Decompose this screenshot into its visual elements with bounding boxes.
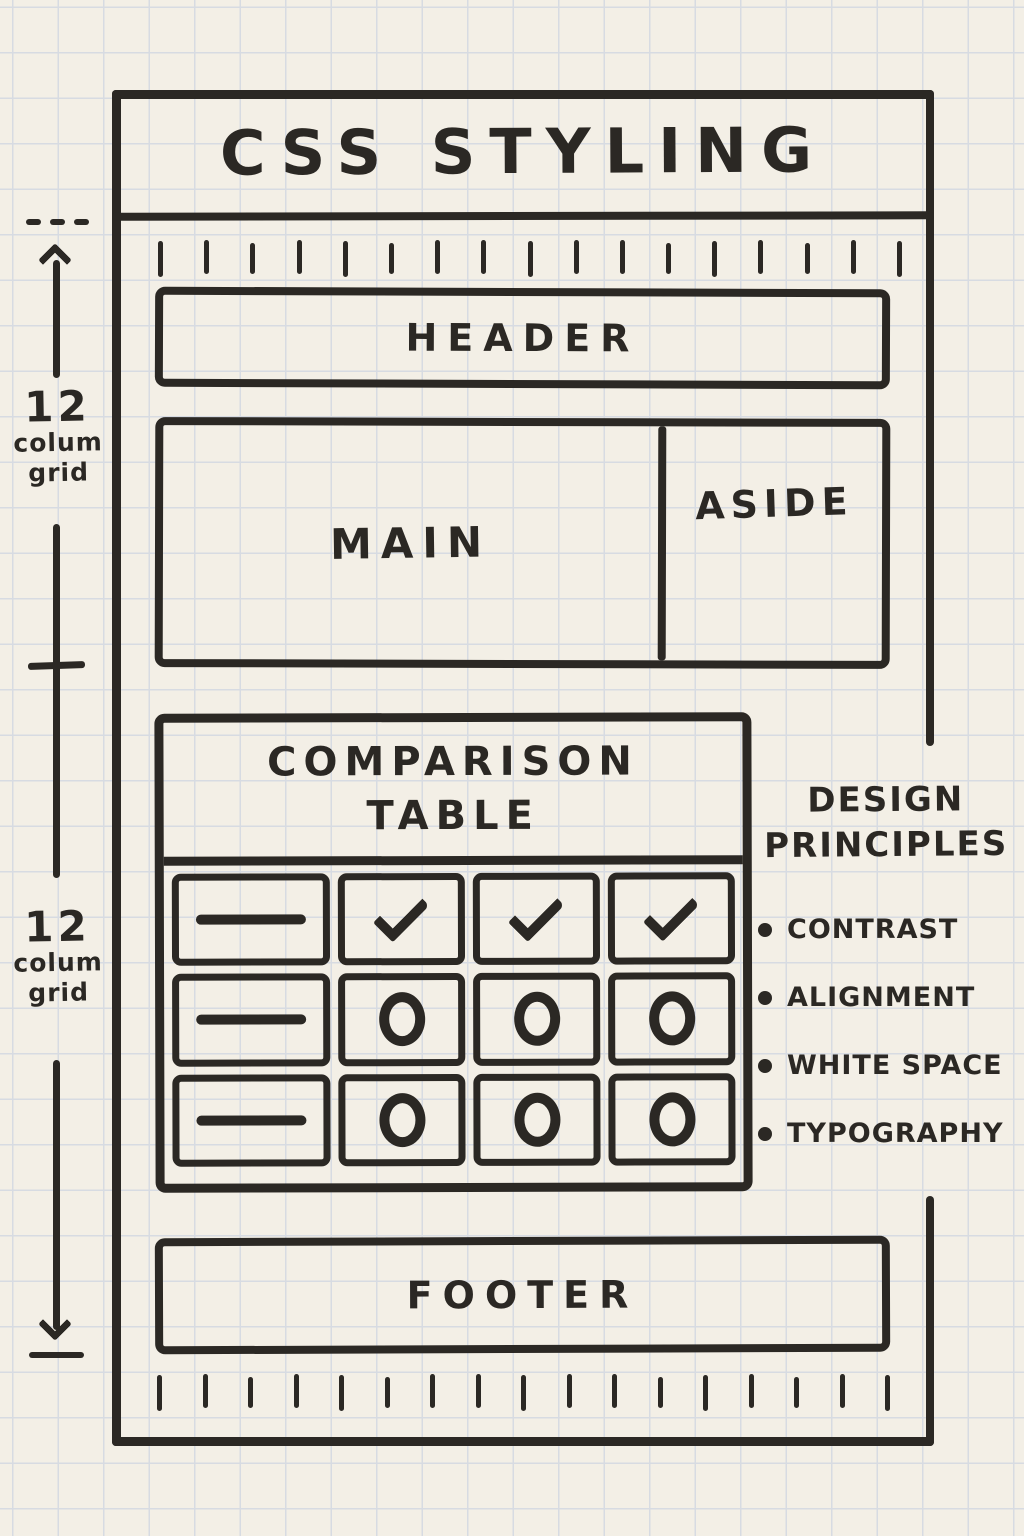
ruler-tick — [389, 243, 394, 274]
circle-icon — [379, 1093, 425, 1147]
measure-line-upper — [53, 260, 60, 378]
check-icon — [372, 886, 429, 943]
ruler-tick — [612, 1374, 617, 1408]
bullet-icon — [758, 1127, 772, 1141]
check-icon — [642, 885, 699, 942]
comparison-table-title: COMPARISON TABLE — [163, 721, 742, 866]
ruler-tick — [703, 1375, 708, 1411]
frame-bottom-border — [112, 1437, 934, 1446]
ruler-tick — [339, 1375, 344, 1411]
dash-icon — [196, 1015, 306, 1025]
principle-label: WHITE SPACE — [787, 1050, 1003, 1081]
principle-label: ALIGNMENT — [787, 982, 975, 1013]
design-principles-title-line2: PRINCIPLES — [758, 822, 1014, 869]
principle-item: WHITE SPACE — [758, 1050, 1014, 1082]
principle-item: ALIGNMENT — [758, 982, 1014, 1014]
circle-icon — [379, 993, 425, 1047]
design-principles: DESIGN PRINCIPLES CONTRAST ALIGNMENT WHI… — [758, 778, 1014, 1186]
ruler-tick — [897, 241, 902, 277]
principle-item: TYPOGRAPHY — [758, 1118, 1014, 1150]
ruler-tick — [343, 241, 348, 277]
ruler-tick — [297, 240, 302, 274]
principle-item: CONTRAST — [758, 914, 1014, 946]
aside-label: ASIDE — [694, 479, 854, 528]
ruler-tick — [840, 1374, 845, 1408]
design-principles-title: DESIGN PRINCIPLES — [758, 777, 1015, 869]
frame-left-border — [112, 90, 121, 1446]
page-title: CSS STYLING — [112, 90, 935, 212]
circle-icon — [514, 992, 560, 1046]
dash-icon — [196, 915, 306, 925]
grid-ruler-bottom — [157, 1374, 890, 1414]
ruler-tick — [666, 243, 671, 274]
arrow-down-icon — [38, 1307, 72, 1341]
measure-value: 12 — [2, 385, 113, 429]
bullet-icon — [758, 991, 772, 1005]
ruler-tick — [794, 1377, 799, 1408]
ruler-tick — [749, 1374, 754, 1408]
check-icon — [507, 886, 564, 943]
measure-cross-tick — [28, 661, 85, 670]
aside-box: ASIDE — [666, 426, 883, 661]
circle-icon — [649, 1092, 695, 1146]
header-label: HEADER — [405, 316, 639, 361]
sketch-canvas: CSS STYLING HEADER MAIN ASIDE COMPARISON… — [0, 0, 1024, 1536]
circle-icon — [514, 1093, 560, 1147]
ruler-tick — [204, 240, 209, 274]
ruler-tick — [528, 241, 533, 277]
comparison-table-grid — [164, 864, 744, 1175]
table-cell — [338, 973, 465, 1066]
design-principles-title-line1: DESIGN — [758, 777, 1014, 824]
table-cell — [608, 872, 735, 965]
table-cell — [473, 973, 600, 1066]
comparison-table-title-line1: COMPARISON — [267, 735, 639, 790]
ruler-tick — [435, 240, 440, 274]
table-cell — [338, 1074, 465, 1167]
measure-line-lower — [53, 1060, 60, 1330]
measure-value: 12 — [2, 905, 113, 949]
table-cell — [172, 873, 330, 966]
table-cell — [473, 873, 600, 966]
table-cell — [338, 873, 465, 966]
ruler-tick — [203, 1374, 208, 1408]
measure-label-lower: 12 colum grid — [2, 905, 114, 1008]
design-principles-list: CONTRAST ALIGNMENT WHITE SPACE TYPOGRAPH… — [758, 914, 1014, 1150]
table-cell — [172, 1074, 330, 1167]
ruler-tick — [521, 1375, 526, 1411]
ruler-tick — [248, 1377, 253, 1408]
ruler-tick — [250, 243, 255, 274]
ruler-tick — [294, 1374, 299, 1408]
ruler-tick — [805, 243, 810, 274]
measure-word: grid — [3, 457, 113, 488]
dash-icon — [196, 1115, 306, 1125]
measure-word: grid — [3, 977, 113, 1008]
circle-icon — [649, 992, 695, 1046]
table-cell — [608, 1073, 735, 1166]
measure-line-middle — [53, 524, 60, 878]
measure-word: colum — [3, 427, 113, 458]
table-cell — [608, 973, 735, 1066]
main-aside-container: MAIN ASIDE — [155, 417, 891, 669]
table-cell — [473, 1073, 600, 1166]
ruler-tick — [574, 240, 579, 274]
ruler-tick — [620, 240, 625, 274]
ruler-tick — [658, 1377, 663, 1408]
ruler-tick — [712, 241, 717, 277]
measure-top-dashed-line — [26, 219, 89, 225]
measure-label-upper: 12 colum grid — [2, 385, 114, 488]
ruler-tick — [481, 240, 486, 274]
bullet-icon — [758, 923, 772, 937]
ruler-tick — [851, 240, 856, 274]
comparison-table: COMPARISON TABLE — [154, 712, 752, 1193]
ruler-tick — [885, 1375, 890, 1411]
ruler-tick — [385, 1377, 390, 1408]
main-label: MAIN — [330, 517, 492, 568]
ruler-tick — [157, 1375, 162, 1411]
grid-ruler-top — [158, 240, 902, 280]
footer-box: FOOTER — [155, 1236, 890, 1355]
ruler-tick — [567, 1374, 572, 1408]
principle-label: CONTRAST — [787, 914, 958, 945]
bullet-icon — [758, 1059, 772, 1073]
header-box: HEADER — [155, 287, 890, 390]
footer-label: FOOTER — [407, 1273, 639, 1318]
measure-end-dash — [29, 1352, 84, 1358]
title-separator-line — [112, 211, 934, 220]
ruler-tick — [158, 241, 163, 277]
frame-right-border-lower — [926, 1196, 934, 1446]
ruler-tick — [758, 240, 763, 274]
ruler-tick — [476, 1374, 481, 1408]
principle-label: TYPOGRAPHY — [787, 1118, 1004, 1149]
main-box: MAIN — [163, 425, 659, 660]
comparison-table-title-line2: TABLE — [366, 789, 540, 843]
measure-word: colum — [3, 947, 113, 978]
ruler-tick — [430, 1374, 435, 1408]
table-cell — [172, 974, 330, 1067]
